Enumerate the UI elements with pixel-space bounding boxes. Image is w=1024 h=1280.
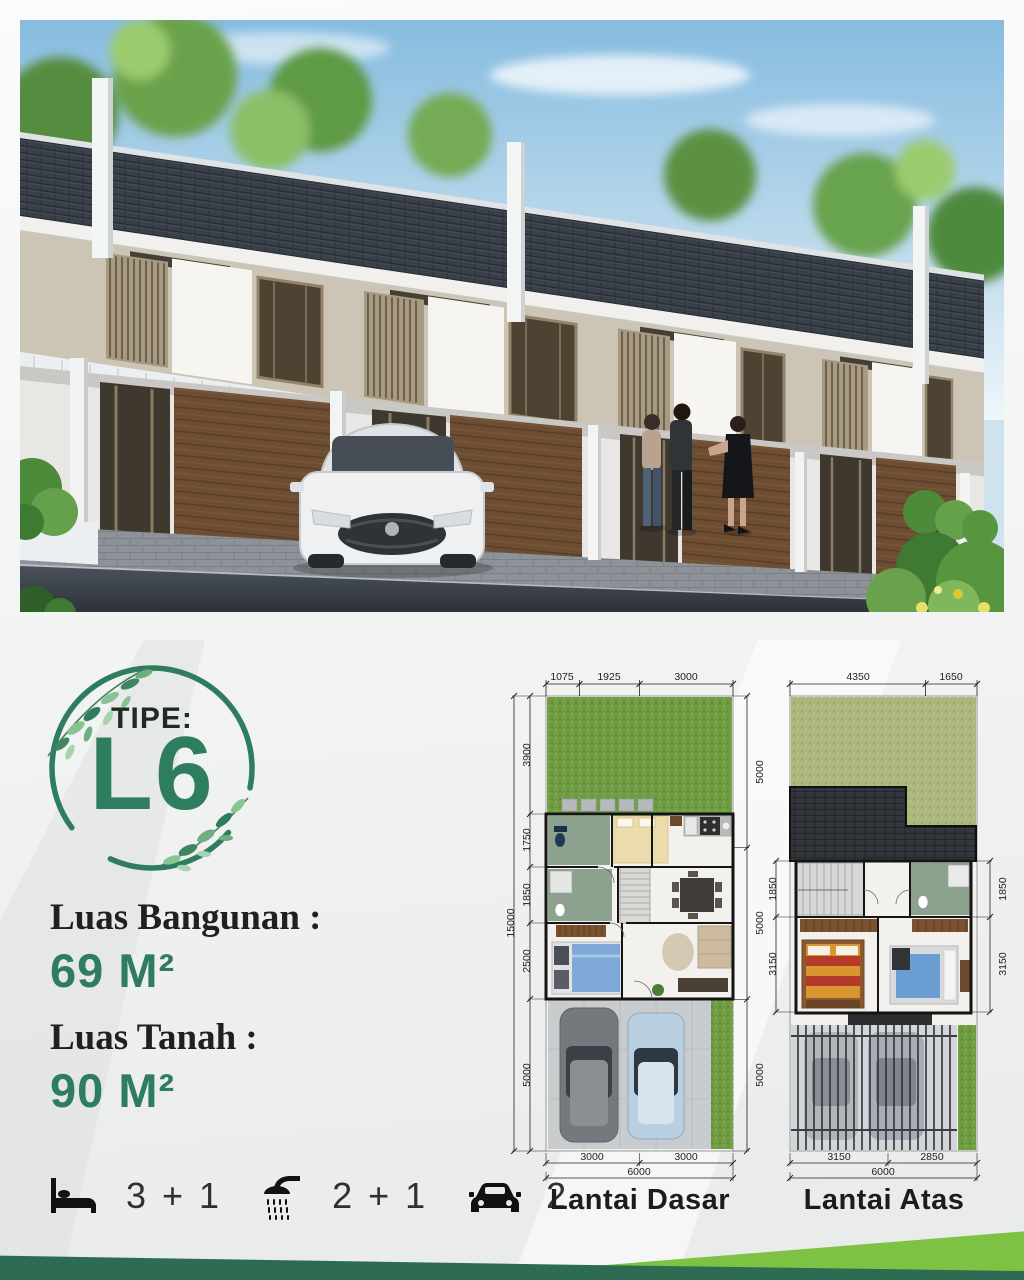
glass-door [100, 382, 170, 541]
dim-label: 1925 [597, 671, 621, 683]
shower-icon [262, 1172, 308, 1220]
floor-plan-lantai-dasar: 1075 1925 3000 15000 3900 1750 1850 2500… [502, 660, 768, 1190]
side-garden-strip [958, 1025, 976, 1150]
car-blue [628, 1013, 684, 1139]
spec-label: Luas Tanah : [50, 1016, 258, 1059]
dim-label: 3900 [521, 743, 533, 767]
feature-value: 2 + 1 [332, 1175, 428, 1217]
dim-label: 1750 [521, 828, 533, 852]
dim-label: 15000 [505, 908, 517, 937]
carport [548, 999, 733, 1149]
spec-land-area: Luas Tanah : 90 M² [50, 1016, 258, 1118]
plan-atas-body [790, 696, 977, 1151]
stairs-upper [796, 863, 864, 915]
feature-bathrooms: 2 + 1 [262, 1172, 428, 1220]
dim-label: 2850 [920, 1151, 944, 1163]
dim-label: 3000 [674, 671, 698, 683]
dim-label: 3150 [827, 1151, 851, 1163]
floor-plan-label-atas: Lantai Atas [744, 1184, 1024, 1217]
lawn-view [791, 697, 976, 787]
page: { "badge": { "label": "TIPE:", "value": … [0, 0, 1024, 1280]
pergola-over-carport [791, 1025, 976, 1150]
dim-label: 1650 [939, 671, 963, 683]
bed-icon [48, 1174, 102, 1218]
spec-label: Luas Bangunan : [50, 896, 321, 939]
stairs [620, 867, 650, 923]
spec-building-area: Luas Bangunan : 69 M² [50, 896, 321, 998]
floor-plan-lantai-atas: 4350 1650 1850 3150 1850 3150 3150 2850 … [760, 660, 1006, 1190]
stepping-stones [562, 799, 653, 811]
spec-value: 90 M² [50, 1063, 258, 1118]
dim-label: 1075 [550, 671, 574, 683]
tipe-value: L6 [40, 722, 264, 826]
dim-label: 3150 [767, 952, 779, 976]
dim-label: 6000 [871, 1166, 895, 1178]
side-garden-strip [711, 999, 733, 1149]
car-dark [560, 1008, 618, 1142]
feature-value: 3 + 1 [126, 1175, 222, 1217]
dim-label: 1850 [997, 877, 1006, 901]
dim-label: 4350 [846, 671, 870, 683]
dim-label: 1850 [521, 883, 533, 907]
spec-value: 69 M² [50, 943, 321, 998]
feature-bedrooms: 3 + 1 [48, 1174, 222, 1218]
dim-label: 5000 [521, 1063, 533, 1087]
dim-label: 3150 [997, 952, 1006, 976]
bathroom-2 [548, 869, 612, 921]
person [670, 404, 692, 531]
dim-label: 3000 [674, 1151, 698, 1163]
hero-render [20, 20, 1004, 612]
plan-dasar-body [546, 696, 733, 1151]
lawn [547, 697, 732, 813]
townhouse-render-illustration [20, 20, 1004, 612]
type-badge: TIPE: L6 [40, 656, 264, 880]
bathroom-upper [910, 863, 971, 915]
features-row: 3 + 1 2 + 1 2 [48, 1172, 569, 1220]
kitchen [684, 816, 731, 836]
balcony-ledge [848, 1013, 932, 1025]
dim-label: 6000 [627, 1166, 651, 1178]
dim-label: 2500 [521, 949, 533, 973]
dim-label: 1850 [767, 877, 779, 901]
dim-label: 3000 [580, 1151, 604, 1163]
floor-plan-label-dasar: Lantai Dasar [500, 1184, 780, 1217]
